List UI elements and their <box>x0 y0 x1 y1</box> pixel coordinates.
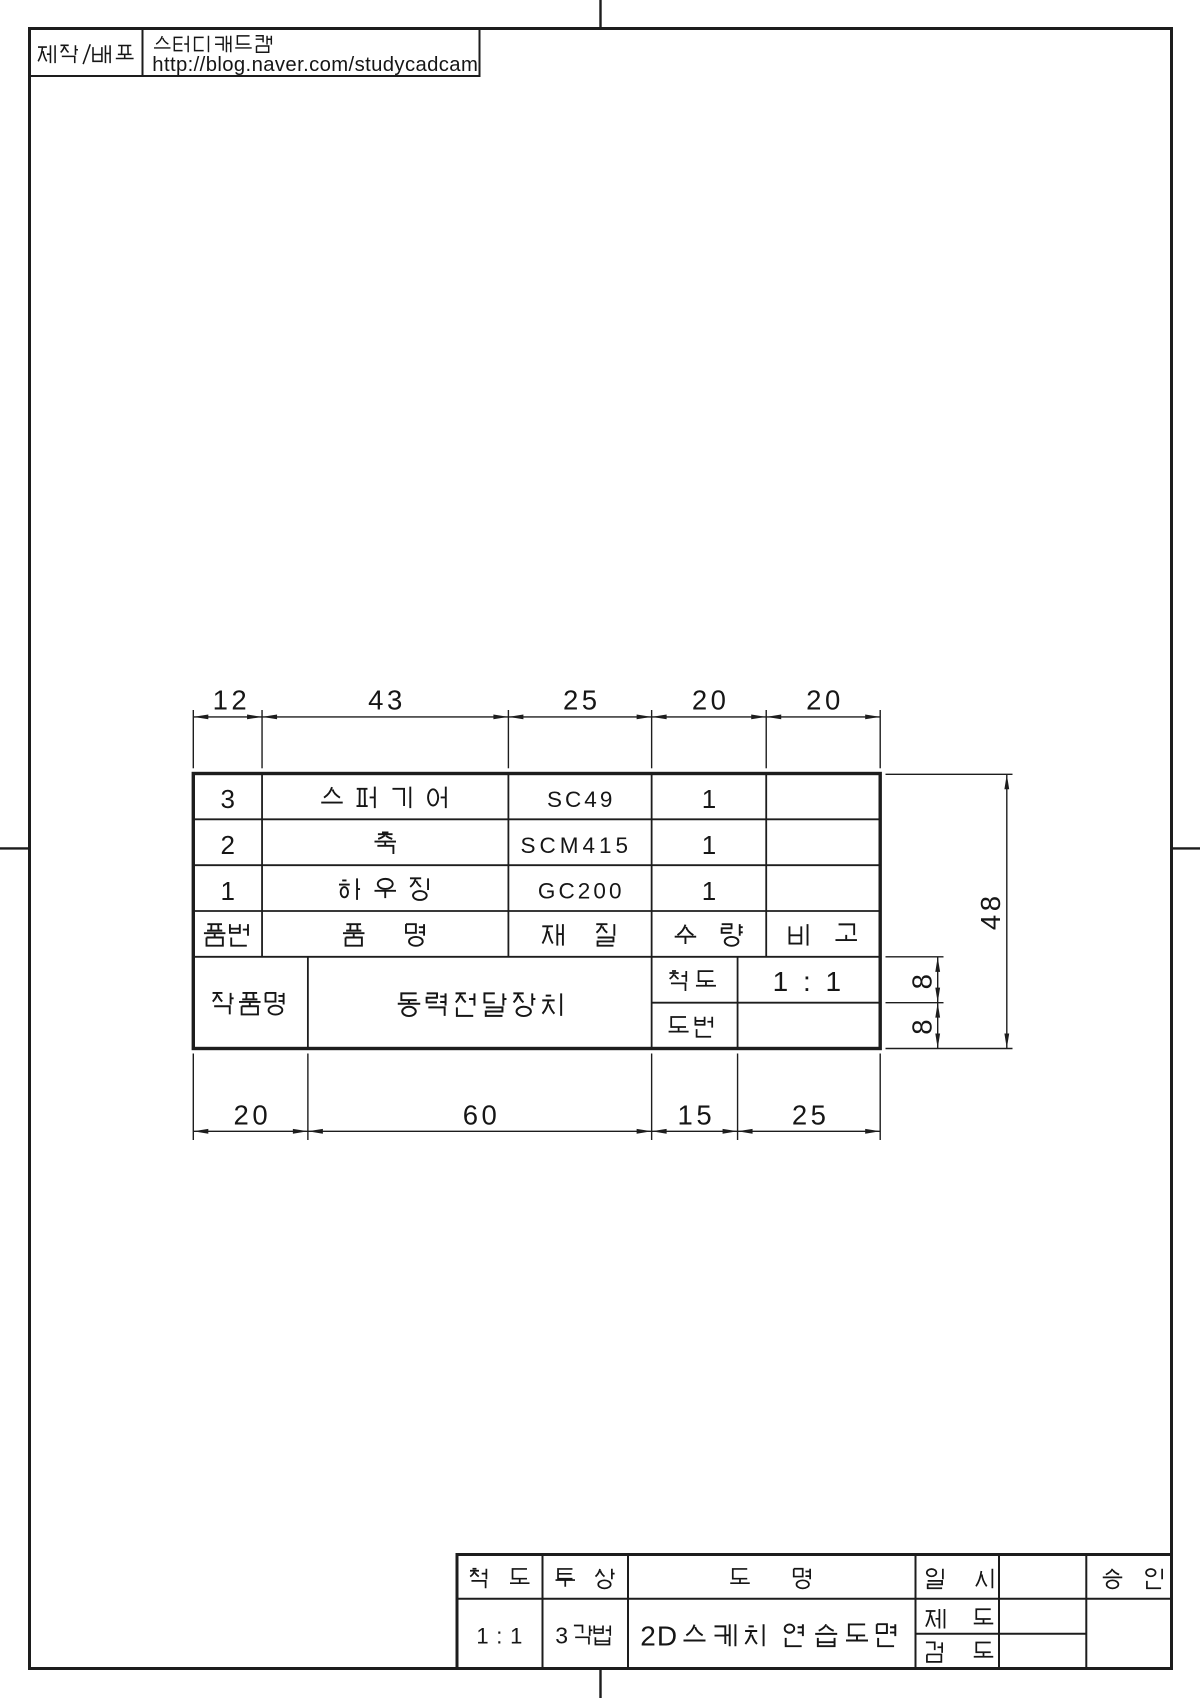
svg-text:SCM415: SCM415 <box>521 833 633 858</box>
svg-text:1: 1 <box>220 876 234 906</box>
svg-text:25: 25 <box>792 1100 830 1131</box>
svg-text:48: 48 <box>975 893 1006 931</box>
svg-text:1: 1 <box>702 830 716 860</box>
svg-text:3: 3 <box>555 1623 568 1649</box>
svg-text:25: 25 <box>563 685 601 716</box>
svg-text:1 : 1: 1 : 1 <box>476 1624 523 1649</box>
svg-text:GC200: GC200 <box>538 879 625 904</box>
svg-text:8: 8 <box>907 974 938 989</box>
svg-text:1: 1 <box>702 876 716 906</box>
svg-text:2D: 2D <box>640 1620 678 1651</box>
svg-text:20: 20 <box>692 685 730 716</box>
svg-text:15: 15 <box>678 1100 716 1131</box>
svg-text:http://blog.naver.com/studycad: http://blog.naver.com/studycadcam <box>152 54 478 76</box>
svg-text:1 : 1: 1 : 1 <box>773 966 845 997</box>
svg-text:20: 20 <box>234 1100 272 1131</box>
svg-text:1: 1 <box>702 784 716 814</box>
svg-text:12: 12 <box>213 685 251 716</box>
svg-text:20: 20 <box>806 685 844 716</box>
svg-text:SC49: SC49 <box>547 787 615 812</box>
svg-text:8: 8 <box>907 1019 938 1034</box>
svg-text:2: 2 <box>220 830 234 860</box>
svg-text:43: 43 <box>368 685 406 716</box>
svg-text:3: 3 <box>220 784 234 814</box>
svg-text:60: 60 <box>463 1100 501 1131</box>
